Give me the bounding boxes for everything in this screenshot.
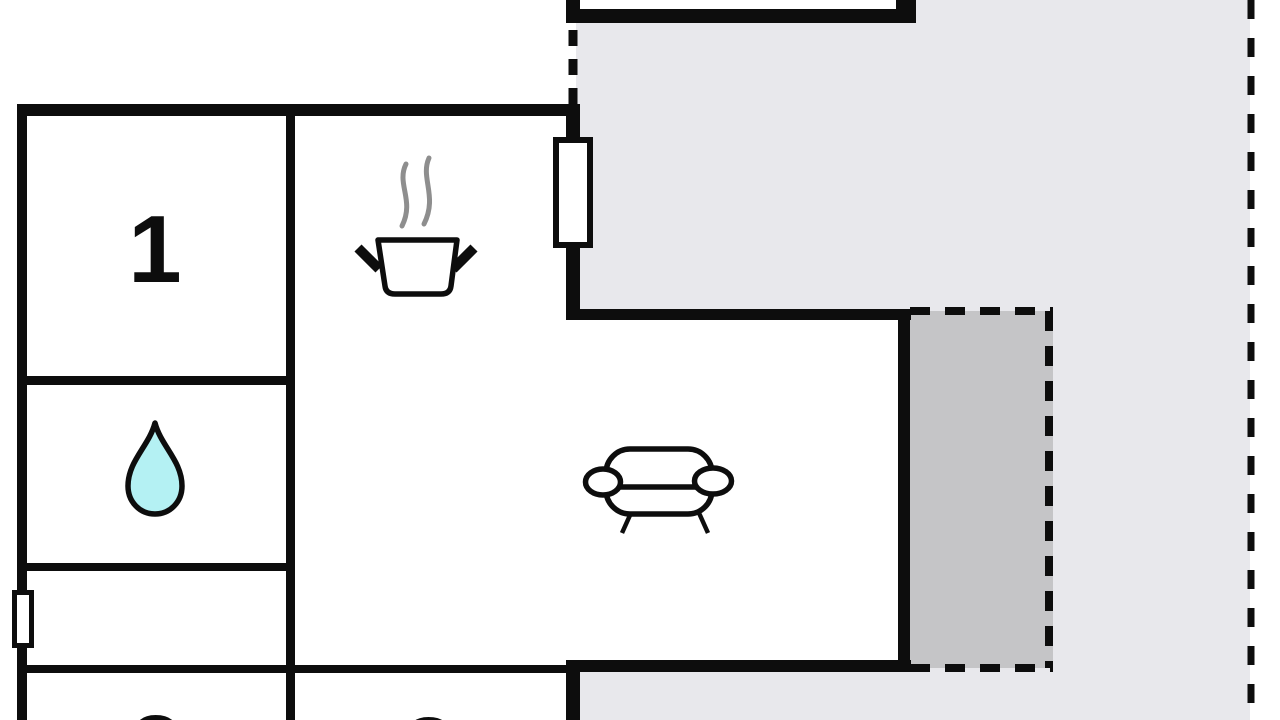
steam-left-icon xyxy=(402,164,407,226)
wall-hall-bottom xyxy=(17,665,580,673)
wall-room1-bottom xyxy=(17,376,295,385)
room-1-label: 1 xyxy=(128,196,181,303)
kitchen-window-icon xyxy=(556,140,590,245)
sofa-leg-right xyxy=(699,513,708,533)
pot-body xyxy=(378,240,457,294)
pot-handle-left xyxy=(358,248,379,269)
wall-living-right xyxy=(898,309,910,672)
wall-bathroom-bottom xyxy=(17,563,295,571)
hall-window-icon xyxy=(15,593,32,646)
room-3-label: 3 xyxy=(402,698,455,720)
wall-top-room-bottom xyxy=(566,9,916,23)
cooking-pot-icon xyxy=(358,158,474,294)
water-drop-icon xyxy=(128,423,182,514)
room-2-label: 2 xyxy=(129,696,182,720)
wall-interior-vertical xyxy=(286,104,295,720)
sofa-armrest-right xyxy=(695,468,732,494)
wall-living-top xyxy=(566,309,911,320)
sofa-icon xyxy=(586,449,732,533)
terrace-dark-area xyxy=(905,311,1053,668)
floor-plan-drawing: 1 2 3 xyxy=(0,0,1280,720)
wall-living-bottom xyxy=(566,660,911,672)
sofa-armrest-left xyxy=(586,469,621,495)
wall-top-room-right xyxy=(896,0,916,23)
water-drop-shape xyxy=(128,423,182,514)
floor-plan: 1 2 3 xyxy=(0,0,1280,720)
wall-top xyxy=(17,104,580,116)
steam-right-icon xyxy=(424,158,430,224)
wall-terrace-left xyxy=(566,660,580,720)
